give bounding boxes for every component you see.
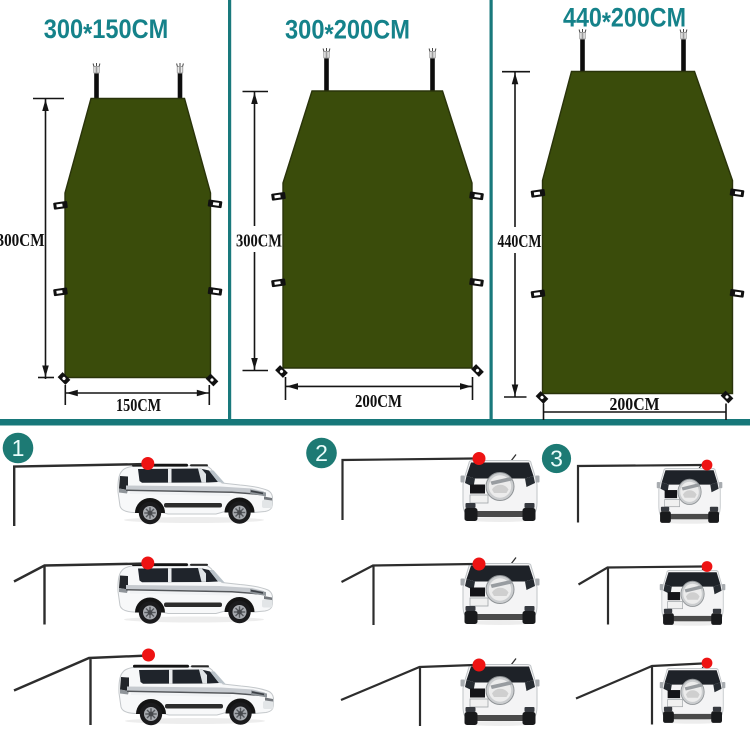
svg-text:3: 3 [550,446,563,472]
svg-text:150CM: 150CM [116,395,161,415]
svg-text:300*150CM: 300*150CM [44,14,169,49]
svg-text:200CM: 200CM [355,391,402,411]
svg-text:1: 1 [12,435,25,461]
svg-text:300CM: 300CM [0,230,45,250]
svg-text:440*200CM: 440*200CM [563,3,686,38]
svg-text:200CM: 200CM [610,394,660,414]
svg-text:440CM: 440CM [498,231,542,251]
svg-text:300CM: 300CM [236,231,282,251]
svg-text:2: 2 [315,440,328,466]
svg-text:300*200CM: 300*200CM [285,15,410,50]
